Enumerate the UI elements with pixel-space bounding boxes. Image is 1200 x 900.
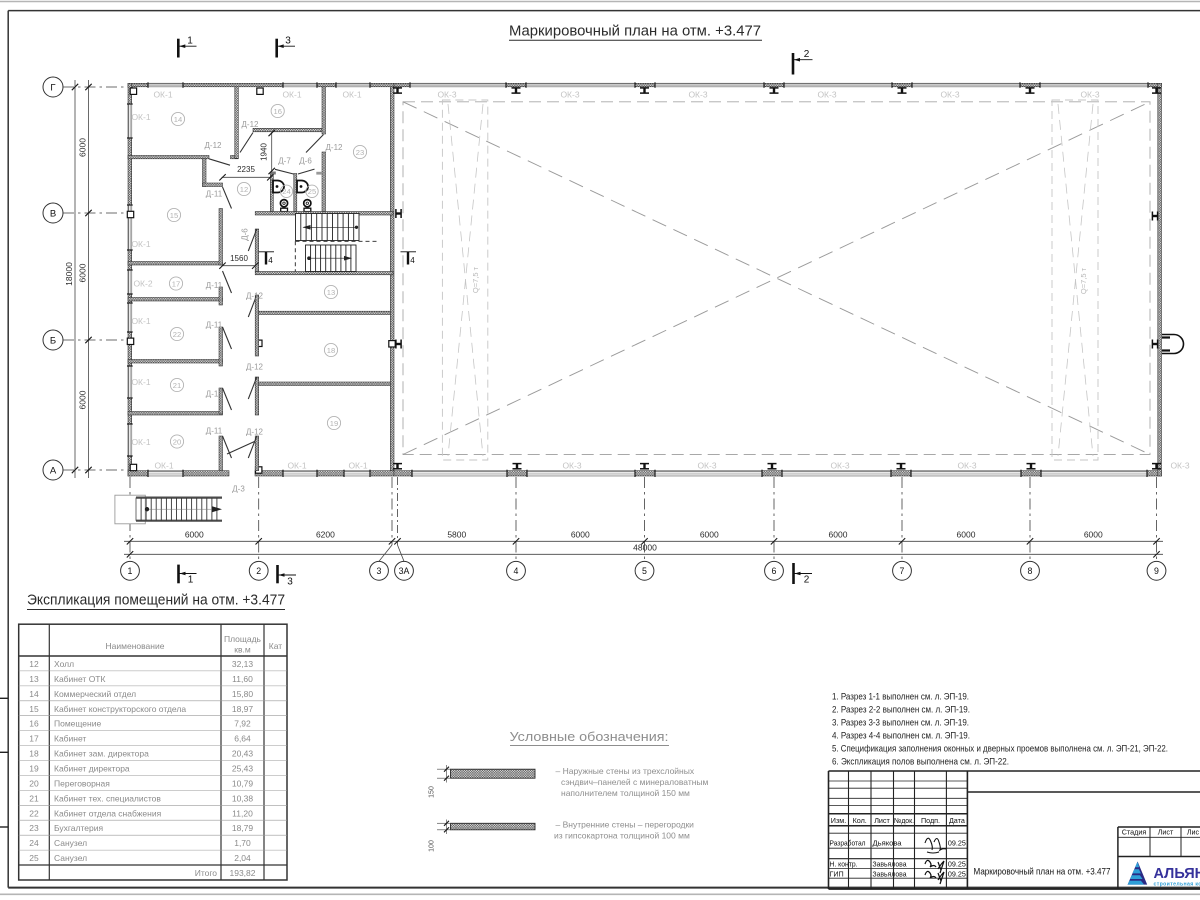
svg-text:Кабинет конструкторского отдел: Кабинет конструкторского отдела [54,704,186,714]
svg-text:5: 5 [642,566,647,576]
svg-text:ОК-3: ОК-3 [940,90,959,100]
svg-text:25,43: 25,43 [232,764,254,774]
svg-text:ОК-3: ОК-3 [1080,90,1099,100]
svg-text:3: 3 [287,577,293,588]
svg-text:6. Экспликация полов выполнена: 6. Экспликация полов выполнена см. л. ЭП… [832,757,1009,767]
svg-text:23: 23 [29,823,39,833]
svg-text:Санузел: Санузел [54,853,87,863]
svg-text:ОК-1: ОК-1 [287,461,306,471]
svg-text:Кабинет: Кабинет [54,734,86,744]
svg-text:15,80: 15,80 [232,689,254,699]
svg-text:Д-11: Д-11 [206,427,223,436]
svg-text:19: 19 [29,764,39,774]
svg-text:Н. контр.: Н. контр. [830,860,858,869]
svg-text:ОК-1: ОК-1 [153,90,172,100]
svg-text:10,38: 10,38 [232,793,254,803]
svg-text:ОК-3: ОК-3 [437,90,456,100]
svg-text:АЛЬЯНС: АЛЬЯНС [1154,866,1200,882]
svg-text:4: 4 [514,566,519,576]
svg-text:Лист: Лист [874,816,890,825]
svg-text:1940: 1940 [260,143,269,161]
svg-text:из гипсокартона толщиной 100 м: из гипсокартона толщиной 100 мм [554,831,690,841]
svg-text:6,64: 6,64 [234,734,251,744]
svg-text:сэндвич–панелей с минераловатн: сэндвич–панелей с минераловатным [561,777,709,787]
svg-text:19: 19 [330,419,338,428]
svg-text:2: 2 [256,566,261,576]
svg-text:22: 22 [29,808,39,818]
svg-text:9: 9 [1154,566,1159,576]
svg-text:Д-6: Д-6 [299,157,312,166]
svg-text:Кабинет директора: Кабинет директора [54,764,130,774]
svg-text:строительная компания: строительная компания [1154,882,1200,888]
svg-text:Коммерческий отдел: Коммерческий отдел [54,689,136,699]
svg-text:ГИП: ГИП [830,869,844,878]
svg-text:ОК-1: ОК-1 [154,461,173,471]
svg-text:6000: 6000 [700,529,719,539]
svg-text:6: 6 [772,566,777,576]
svg-text:№док.: №док. [894,816,914,825]
svg-text:Q=7,5 т: Q=7,5 т [1079,267,1088,294]
svg-text:17: 17 [172,279,180,288]
svg-text:Д-12: Д-12 [246,292,264,301]
svg-text:6000: 6000 [78,263,88,282]
svg-text:6200: 6200 [316,529,335,539]
svg-text:10,79: 10,79 [232,778,254,788]
svg-text:25: 25 [308,187,316,196]
svg-text:наполнителем толщиной 150 мм: наполнителем толщиной 150 мм [561,788,690,798]
svg-text:Наименование: Наименование [106,641,165,651]
svg-text:Д-11: Д-11 [206,390,223,399]
svg-text:Д-3: Д-3 [232,485,245,494]
svg-text:Маркировочный план на отм. +3.: Маркировочный план на отм. +3.477 [974,867,1111,877]
svg-text:ОК-1: ОК-1 [348,461,367,471]
svg-text:Д-12: Д-12 [242,120,260,129]
svg-text:Экспликация помещений на отм.: Экспликация помещений на отм. +3.477 [27,593,285,609]
svg-text:Помещение: Помещение [54,719,101,729]
svg-text:Б: Б [50,336,56,347]
svg-text:09.25: 09.25 [948,839,966,848]
svg-text:Дата: Дата [949,816,965,825]
svg-text:3. Разрез 3-3 выполнен см. л.: 3. Разрез 3-3 выполнен см. л. ЭП-19. [832,718,969,728]
svg-text:1: 1 [128,566,133,576]
svg-text:16: 16 [29,719,39,729]
svg-text:3: 3 [377,566,382,576]
svg-text:ОК-2: ОК-2 [133,279,152,289]
svg-text:6000: 6000 [78,138,88,157]
svg-text:20,43: 20,43 [232,749,254,759]
svg-text:12: 12 [240,185,248,194]
svg-text:3А: 3А [399,566,410,576]
svg-text:ОК-1: ОК-1 [342,90,361,100]
svg-text:2,04: 2,04 [234,853,251,863]
svg-text:ОК-3: ОК-3 [697,461,716,471]
svg-text:24: 24 [29,838,39,848]
svg-text:14: 14 [174,115,182,124]
svg-text:Лис: Лис [1187,828,1200,837]
svg-text:6000: 6000 [829,529,848,539]
svg-text:2235: 2235 [237,165,255,174]
svg-text:Д-12: Д-12 [326,143,344,152]
svg-text:5. Спецификация заполнения око: 5. Спецификация заполнения оконных и две… [832,744,1168,754]
svg-text:Изм.: Изм. [831,816,846,825]
svg-text:Г: Г [50,83,55,94]
svg-text:Кабинет отдела снабжения: Кабинет отдела снабжения [54,808,162,818]
svg-text:11,20: 11,20 [232,808,253,818]
svg-text:18000: 18000 [64,262,74,286]
svg-text:ОК-3: ОК-3 [688,90,707,100]
svg-text:21: 21 [29,793,39,803]
svg-text:Д-11: Д-11 [206,281,223,290]
svg-text:Кабинет зам. директора: Кабинет зам. директора [54,749,149,759]
svg-text:Разработал: Разработал [830,839,866,848]
svg-text:20: 20 [29,778,39,788]
svg-text:18,79: 18,79 [232,823,254,833]
svg-text:14: 14 [29,689,39,699]
svg-text:Кат: Кат [269,641,282,651]
svg-text:24: 24 [282,187,290,196]
svg-text:Кабинет ОТК: Кабинет ОТК [54,674,105,684]
svg-text:18: 18 [29,749,39,759]
svg-text:20: 20 [173,437,181,446]
svg-text:48000: 48000 [633,543,657,553]
svg-text:3: 3 [285,36,291,47]
svg-text:4. Разрез 4-4 выполнен см. л.: 4. Разрез 4-4 выполнен см. л. ЭП-19. [832,731,970,741]
svg-text:Площадь: Площадь [224,634,262,644]
svg-text:5800: 5800 [447,529,466,539]
svg-text:15: 15 [170,211,178,220]
svg-text:Кол.: Кол. [853,816,867,825]
svg-text:100: 100 [429,840,436,852]
svg-text:4: 4 [410,256,415,265]
svg-text:1: 1 [187,36,193,47]
svg-text:11,60: 11,60 [232,674,253,684]
svg-text:ОК-3: ОК-3 [830,461,849,471]
svg-text:ОК-1: ОК-1 [282,90,301,100]
svg-text:15: 15 [29,704,39,714]
svg-text:ОК-1: ОК-1 [131,377,150,387]
svg-text:17: 17 [29,734,39,744]
svg-text:ОК-1: ОК-1 [131,112,150,122]
svg-text:Бухгалтерия: Бухгалтерия [54,823,103,833]
svg-text:1. Разрез 1-1 выполнен см. л.: 1. Разрез 1-1 выполнен см. л. ЭП-19. [832,692,969,702]
svg-text:ОК-3: ОК-3 [957,461,976,471]
svg-text:1,70: 1,70 [234,838,251,848]
svg-text:6000: 6000 [1084,529,1103,539]
svg-text:Итого: Итого [195,868,218,878]
svg-text:09.25: 09.25 [948,860,966,869]
svg-text:ОК-3: ОК-3 [817,90,836,100]
svg-text:Дьякова: Дьякова [873,839,902,848]
svg-text:18,97: 18,97 [232,704,254,714]
svg-text:Маркировочный план на отм. +3.: Маркировочный план на отм. +3.477 [509,23,761,40]
svg-text:13: 13 [29,674,39,684]
svg-text:18: 18 [327,346,335,355]
svg-text:6000: 6000 [957,529,976,539]
svg-text:Д-6: Д-6 [241,228,250,241]
svg-text:6000: 6000 [78,390,88,409]
svg-text:А: А [50,466,57,477]
svg-text:1560: 1560 [230,254,248,263]
svg-text:Условные обозначения:: Условные обозначения: [510,730,669,744]
svg-text:6000: 6000 [185,529,204,539]
svg-text:7,92: 7,92 [234,719,251,729]
svg-text:13: 13 [327,288,335,297]
svg-text:4: 4 [268,256,273,265]
svg-text:Стадия: Стадия [1122,828,1147,837]
svg-text:8: 8 [1028,566,1033,576]
svg-text:09.25: 09.25 [948,869,966,878]
svg-text:23: 23 [356,148,364,157]
svg-text:6000: 6000 [571,529,590,539]
svg-text:Холл: Холл [54,659,74,669]
svg-text:– Наружные стены из трехслойны: – Наружные стены из трехслойных [556,766,695,776]
svg-text:Д-11: Д-11 [206,190,223,199]
svg-text:12: 12 [29,659,39,669]
svg-text:Д-12: Д-12 [246,428,264,437]
svg-text:Завьялова: Завьялова [873,860,907,869]
svg-text:22: 22 [173,330,181,339]
svg-text:ОК-3: ОК-3 [560,90,579,100]
svg-text:Лист: Лист [1158,828,1174,837]
svg-text:Кабинет тех. специалистов: Кабинет тех. специалистов [54,793,161,803]
svg-text:Д-11: Д-11 [206,321,223,330]
svg-text:ОК-3: ОК-3 [562,461,581,471]
svg-text:Санузел: Санузел [54,838,87,848]
svg-text:Завьялова: Завьялова [873,869,907,878]
svg-text:25: 25 [29,853,39,863]
svg-text:16: 16 [273,107,281,116]
svg-text:32,13: 32,13 [232,659,254,669]
svg-text:Q=7,5 т: Q=7,5 т [471,266,480,293]
svg-text:ОК-3: ОК-3 [1170,461,1189,471]
svg-text:ОК-1: ОК-1 [131,239,150,249]
svg-text:1: 1 [188,575,194,586]
svg-text:кв.м: кв.м [234,645,251,655]
svg-text:Подп.: Подп. [921,816,940,825]
svg-text:2. Разрез 2-2 выполнен см. л.: 2. Разрез 2-2 выполнен см. л. ЭП-19. [832,705,970,715]
svg-text:Д-12: Д-12 [205,141,223,150]
svg-text:2: 2 [804,575,810,586]
svg-text:Д-7: Д-7 [278,157,291,166]
svg-text:193,82: 193,82 [230,868,256,878]
svg-text:2: 2 [804,49,810,60]
svg-text:В: В [50,209,56,220]
svg-text:ОК-1: ОК-1 [131,316,150,326]
svg-text:21: 21 [173,381,181,390]
svg-text:7: 7 [900,566,905,576]
svg-text:150: 150 [429,786,436,798]
svg-text:Д-12: Д-12 [246,363,264,372]
svg-text:Переговорная: Переговорная [54,778,110,788]
svg-text:– Внутренние стены – перегород: – Внутренние стены – перегородки [556,820,695,830]
svg-text:ОК-1: ОК-1 [131,437,150,447]
